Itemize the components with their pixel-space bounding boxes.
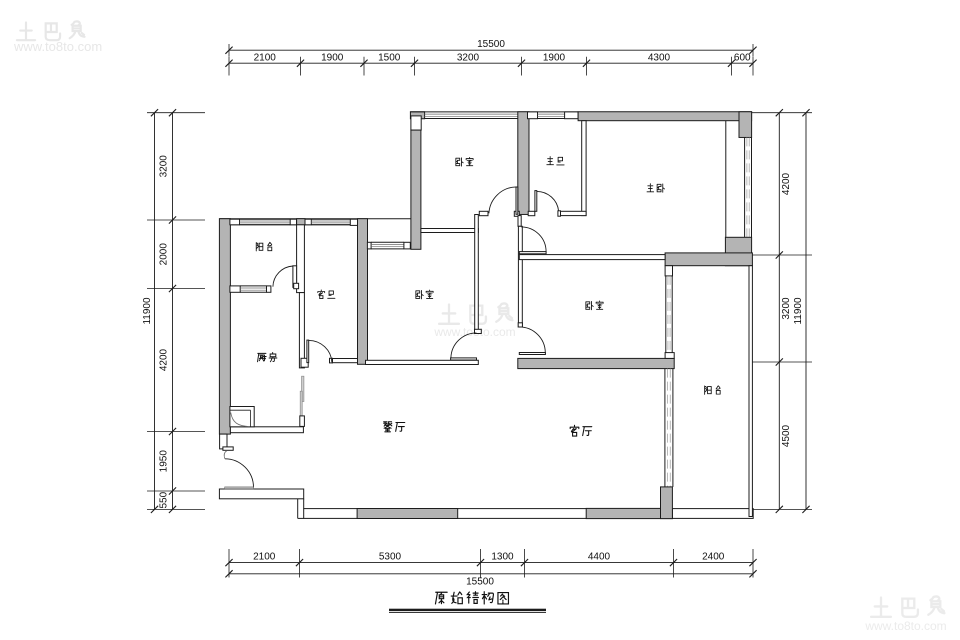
svg-text:2000: 2000 [159, 243, 170, 266]
svg-text:1950: 1950 [159, 450, 170, 473]
svg-text:11900: 11900 [793, 297, 804, 325]
svg-text:4500: 4500 [781, 424, 792, 447]
svg-text:4400: 4400 [588, 552, 611, 563]
svg-text:550: 550 [159, 491, 170, 508]
svg-text:3200: 3200 [457, 52, 480, 63]
svg-text:15500: 15500 [477, 39, 505, 50]
svg-text:1500: 1500 [378, 52, 401, 63]
svg-text:4300: 4300 [648, 52, 671, 63]
svg-text:www.to8to.com: www.to8to.com [13, 39, 102, 54]
svg-text:2100: 2100 [253, 552, 276, 563]
svg-text:600: 600 [734, 52, 751, 63]
svg-text:3200: 3200 [781, 297, 792, 320]
svg-text:www.to8to.com: www.to8to.com [864, 619, 946, 633]
svg-text:11900: 11900 [142, 297, 153, 325]
svg-text:1900: 1900 [321, 52, 344, 63]
svg-text:2400: 2400 [702, 552, 725, 563]
svg-text:2100: 2100 [254, 52, 277, 63]
svg-text:1300: 1300 [491, 552, 514, 563]
svg-text:4200: 4200 [159, 348, 170, 371]
svg-text:1900: 1900 [543, 52, 566, 63]
svg-text:15500: 15500 [466, 577, 494, 588]
svg-text:3200: 3200 [159, 155, 170, 178]
svg-text:5300: 5300 [379, 552, 402, 563]
svg-text:4200: 4200 [781, 172, 792, 195]
